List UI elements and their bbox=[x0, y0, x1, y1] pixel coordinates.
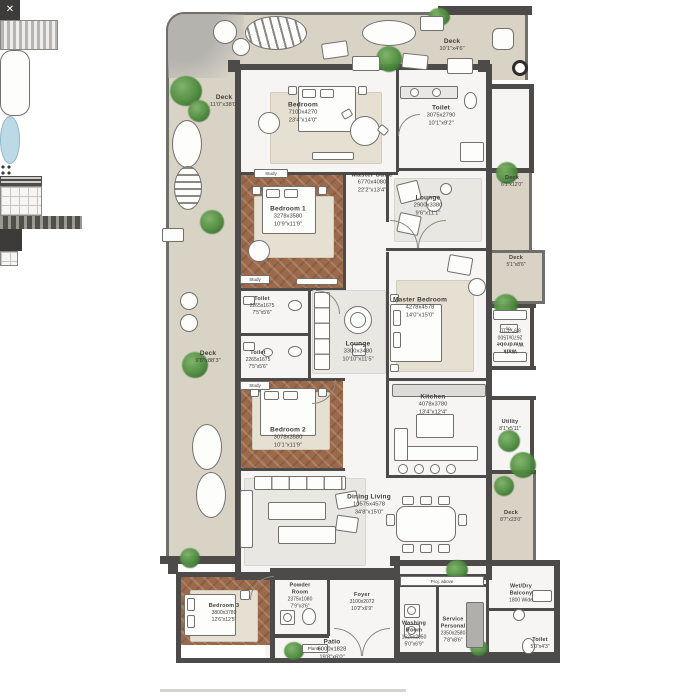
label-kitchen: Kitchen 4078x3780 13'4"x12'4" bbox=[419, 393, 448, 417]
service-sink bbox=[0, 251, 18, 266]
round-table bbox=[440, 183, 452, 195]
wall bbox=[386, 248, 488, 251]
room-dim: 10'10"x11'5" bbox=[342, 356, 373, 364]
room-dim: 6770x4080 bbox=[351, 180, 392, 188]
study-tag: Study bbox=[240, 275, 270, 284]
room-name: Powder Room bbox=[281, 582, 319, 596]
room-dim: 9'6"x11'1" bbox=[414, 210, 443, 218]
wall bbox=[386, 378, 488, 381]
outdoor-lounger bbox=[172, 120, 202, 168]
outdoor-chair bbox=[180, 292, 198, 310]
room-name: Service Personal bbox=[433, 616, 473, 630]
shaft-icon: ✕ bbox=[0, 0, 20, 20]
dining-chair bbox=[438, 544, 450, 553]
room-dim: 10575x4578 bbox=[347, 502, 391, 510]
dining-chair bbox=[458, 514, 467, 526]
column bbox=[228, 60, 240, 72]
label-lounge-top: Lounge 2900x3380 9'6"x11'1" bbox=[414, 194, 443, 218]
room-dim: 23'4"x14'0" bbox=[288, 117, 318, 125]
tree bbox=[188, 100, 210, 122]
wall bbox=[488, 396, 536, 400]
dining-chair bbox=[402, 544, 414, 553]
room-name: Deck bbox=[210, 94, 238, 102]
stove-icon bbox=[0, 164, 12, 176]
room-dim: 8'1"x5'11" bbox=[499, 426, 521, 433]
label-toilet-top: Toilet 3075x2790 10'1"x9'2" bbox=[427, 104, 456, 128]
wall bbox=[386, 475, 488, 478]
room-name: Master Suite bbox=[351, 171, 392, 179]
tree bbox=[200, 210, 224, 234]
wall bbox=[529, 84, 534, 173]
downlight-icon bbox=[512, 60, 528, 76]
pillow bbox=[302, 89, 316, 98]
label-foyer: Foyer 3100x2072 10'2"x6'9" bbox=[350, 592, 375, 612]
armchair bbox=[258, 112, 280, 134]
room-name: Toilet bbox=[530, 637, 549, 644]
room-name: Wet/Dry Balcony bbox=[504, 584, 538, 598]
label-bedroom-top: Bedroom 7100x4270 23'4"x14'0" bbox=[288, 101, 318, 125]
pillow bbox=[264, 391, 279, 400]
room-name: Foyer bbox=[350, 592, 375, 599]
label-toilet-mid-upper: Toilet 2265x1675 7'5"x5'6" bbox=[250, 296, 275, 316]
room-dim: 7100x4270 bbox=[288, 110, 318, 118]
room-name: Toilet bbox=[250, 296, 275, 303]
room-name: Patio bbox=[318, 638, 347, 646]
label-bedroom3: Bedroom 3 3800x3780 12'6"x12'5" bbox=[209, 603, 240, 623]
room-name: Bedroom bbox=[288, 101, 318, 109]
column bbox=[168, 564, 178, 574]
nightstand bbox=[318, 186, 327, 195]
room-dim: 3300x3480 bbox=[342, 349, 373, 357]
kitchen-counter bbox=[394, 428, 408, 461]
sofa bbox=[254, 476, 346, 490]
wall bbox=[270, 568, 398, 574]
wc-toilet bbox=[464, 92, 477, 109]
outdoor-chair bbox=[401, 53, 428, 71]
washing-machine-icon bbox=[0, 229, 22, 251]
pillow bbox=[393, 332, 401, 348]
label-master-bedroom: Master Bedroom 4278x4578 14'0"x15'0" bbox=[392, 296, 448, 320]
nightstand bbox=[240, 590, 250, 600]
column bbox=[390, 556, 400, 566]
room-dim: 3100x2072 bbox=[350, 599, 375, 606]
label-dining-living: Dining Living 10575x4578 34'8"x15'0" bbox=[347, 493, 391, 517]
room-name: Master Bedroom bbox=[392, 296, 448, 304]
wall bbox=[176, 658, 560, 663]
dining-chair bbox=[420, 544, 432, 553]
room-dim: 12'6"x12'5" bbox=[209, 617, 240, 624]
column bbox=[478, 60, 490, 72]
room-name: Deck bbox=[506, 255, 525, 262]
bar-stool bbox=[446, 464, 456, 474]
wall bbox=[486, 64, 492, 580]
room-dim: 10'1"x9'2" bbox=[427, 120, 456, 128]
armchair bbox=[447, 254, 474, 276]
label-walk-wardrobe: Walk Wardrobe 2670x1500 8'9"x4'11" bbox=[491, 326, 529, 353]
label-wet-dry-balcony: Wet/Dry Balcony 1800 Wide bbox=[504, 584, 538, 605]
wall bbox=[176, 572, 181, 660]
room-dim: 5'0"x4'3" bbox=[530, 644, 549, 651]
washer-drum bbox=[407, 606, 416, 615]
nightstand bbox=[288, 86, 297, 95]
outdoor-chair bbox=[232, 38, 250, 56]
vanity-counter bbox=[400, 86, 458, 99]
room-dim: 6000x1828 bbox=[318, 647, 347, 655]
dining-chair bbox=[438, 496, 450, 505]
utility-tiles bbox=[0, 186, 42, 216]
bbq-bench bbox=[162, 228, 184, 242]
room-name: Deck bbox=[501, 175, 523, 182]
tree bbox=[284, 642, 304, 660]
cabinet bbox=[460, 142, 484, 162]
pillow bbox=[320, 89, 334, 98]
room-name: Lounge bbox=[414, 194, 443, 202]
nightstand bbox=[252, 186, 261, 195]
room-dim: 10'2"x6'9" bbox=[350, 606, 375, 613]
room-name: Bedroom 3 bbox=[209, 603, 240, 610]
wall bbox=[327, 574, 330, 636]
room-dim: 10'1"x4'6" bbox=[439, 46, 464, 54]
vent-grille bbox=[0, 176, 42, 186]
wall bbox=[488, 84, 534, 89]
room-name: Deck bbox=[500, 510, 522, 517]
room-dim: 19'8"x6'0" bbox=[318, 654, 347, 662]
room-name: Dining Living bbox=[347, 493, 391, 501]
room-dim: 10'1"x11'9" bbox=[270, 442, 306, 450]
proj-above-strip: Proj. above bbox=[400, 576, 484, 586]
label-patio: Patio 6000x1828 19'8"x6'0" bbox=[318, 638, 347, 662]
room-dim: 7'5"x5'6" bbox=[250, 310, 275, 317]
tv-console bbox=[296, 278, 338, 285]
outdoor-chair bbox=[447, 58, 473, 74]
coffee-table bbox=[268, 502, 326, 520]
room-dim: 14'0"x15'0" bbox=[392, 312, 448, 320]
label-service-personal: Service Personal 2350x2580 7'8"x8'6" bbox=[433, 616, 473, 643]
room-dim: 2265x1675 bbox=[246, 357, 271, 364]
bar-stool bbox=[430, 464, 440, 474]
armchair bbox=[335, 515, 359, 534]
tree bbox=[180, 548, 200, 568]
room-dim: 13'4"x12'4" bbox=[419, 409, 448, 417]
room-dim: 7'5"x5'6" bbox=[246, 364, 271, 371]
label-washing-room: Washing Room 1525x2050 5'0"x6'9" bbox=[397, 620, 431, 647]
wall bbox=[241, 333, 310, 336]
room-dim: 4278x4578 bbox=[392, 305, 448, 313]
room-name: Deck bbox=[195, 350, 220, 358]
room-name: Bedroom 2 bbox=[270, 426, 306, 434]
bar-stool bbox=[414, 464, 424, 474]
outdoor-lounger bbox=[174, 166, 202, 210]
wall bbox=[398, 168, 488, 171]
round-table bbox=[468, 278, 486, 296]
footer-fineprint bbox=[160, 689, 406, 692]
room-dim: 2265x1675 bbox=[250, 303, 275, 310]
label-bedroom1: Bedroom 1 3278x3580 10'9"x11'9" bbox=[270, 205, 306, 229]
room-dim: 5'1"x8'6" bbox=[506, 262, 525, 269]
bathtub-water bbox=[0, 116, 20, 164]
wall bbox=[438, 6, 532, 15]
room-name: Walk Wardrobe bbox=[491, 339, 529, 353]
label-deck-left: Deck 9'8"x88'3" bbox=[195, 350, 220, 366]
bar-stool bbox=[398, 464, 408, 474]
room-name: Bedroom 1 bbox=[270, 205, 306, 213]
sink bbox=[432, 88, 441, 97]
room-name: Toilet bbox=[427, 104, 456, 112]
room-dim: 22'2"x13'4" bbox=[351, 187, 392, 195]
room-dim: 2900x3380 bbox=[414, 203, 443, 211]
room-dim: 9'8"x88'3" bbox=[195, 358, 220, 366]
room-dim: 11'0"x38'0" bbox=[210, 102, 238, 110]
label-master-suite: Master Suite 6770x4080 22'2"x13'4" bbox=[351, 171, 392, 195]
room-dim: 1800 Wide bbox=[504, 598, 538, 605]
room-dim: 3278x3580 bbox=[270, 214, 306, 222]
outdoor-side-table bbox=[492, 28, 514, 50]
sink bbox=[410, 88, 419, 97]
kitchen-island bbox=[416, 414, 454, 438]
pillow bbox=[283, 391, 298, 400]
round-table bbox=[350, 116, 380, 146]
sink-bowl bbox=[283, 613, 292, 622]
wall bbox=[386, 252, 389, 380]
outdoor-chair bbox=[352, 56, 380, 71]
room-name: Washing Room bbox=[397, 620, 431, 634]
wall bbox=[530, 304, 534, 370]
pillow bbox=[284, 189, 298, 198]
wc-toilet bbox=[288, 300, 302, 311]
wall bbox=[176, 572, 275, 577]
wall bbox=[386, 380, 389, 477]
room-dim: 3075x2790 bbox=[427, 113, 456, 121]
outdoor-table bbox=[362, 20, 416, 46]
outdoor-lounger bbox=[196, 472, 226, 518]
wall bbox=[394, 560, 560, 566]
label-deck-right-lower: Deck 8'7"x23'0" bbox=[500, 510, 522, 524]
tree bbox=[494, 476, 514, 496]
outdoor-chair bbox=[180, 314, 198, 332]
pillow bbox=[187, 598, 195, 611]
room-dim: 10'9"x11'9" bbox=[270, 221, 306, 229]
sofa bbox=[240, 490, 253, 548]
room-dim: 8'7"x23'0" bbox=[500, 517, 522, 524]
room-dim: 4078x3780 bbox=[419, 402, 448, 410]
label-deck-right-upper: Deck 6'1"x12'0" bbox=[501, 175, 523, 189]
room-dim: 7'9"x3'6" bbox=[281, 603, 319, 610]
dining-chair bbox=[402, 496, 414, 505]
nightstand bbox=[390, 364, 399, 372]
coffee-table bbox=[278, 526, 336, 544]
room-dim: 34'8"x15'0" bbox=[347, 509, 391, 517]
outdoor-lounger bbox=[245, 16, 307, 50]
wc-toilet bbox=[302, 608, 316, 625]
label-deck-right-mid: Deck 5'1"x8'6" bbox=[506, 255, 525, 269]
tub-room-floor bbox=[488, 89, 529, 168]
nightstand bbox=[358, 86, 367, 95]
wc-toilet bbox=[288, 346, 302, 357]
label-deck-top-right: Deck 10'1"x4'6" bbox=[439, 38, 464, 54]
room-name: Utility bbox=[499, 419, 521, 426]
floor-plan: ✕ Study bbox=[0, 0, 700, 700]
label-toilet-service: Toilet 5'0"x4'3" bbox=[530, 637, 549, 651]
washing-machine-drum bbox=[513, 609, 525, 621]
label-powder-room: Powder Room 2375x1080 7'9"x3'6" bbox=[281, 582, 319, 609]
bathtub bbox=[0, 50, 30, 116]
room-name: Toilet bbox=[246, 350, 271, 357]
room-dim: 1525x2050 bbox=[397, 635, 431, 642]
room-name: Lounge bbox=[342, 340, 373, 348]
room-dim: 3800x3780 bbox=[209, 610, 240, 617]
room-dim: 7'8"x8'6" bbox=[433, 637, 473, 644]
pillow bbox=[187, 615, 195, 628]
tree bbox=[498, 430, 520, 452]
label-deck-top-left: Deck 11'0"x38'0" bbox=[210, 94, 238, 110]
room-dim: 3078x3580 bbox=[270, 435, 306, 443]
room-dim: 6'1"x12'0" bbox=[501, 182, 523, 189]
louver-deck bbox=[0, 216, 82, 229]
outdoor-chair bbox=[420, 16, 444, 31]
dining-table bbox=[396, 506, 456, 542]
wardrobe-shelf bbox=[493, 310, 527, 320]
dining-chair bbox=[420, 496, 432, 505]
study-tag: Study bbox=[254, 169, 288, 178]
room-name: Kitchen bbox=[419, 393, 448, 401]
label-toilet-mid-lower: Toilet 2265x1675 7'5"x5'6" bbox=[246, 350, 271, 370]
wall bbox=[396, 70, 399, 172]
bench bbox=[312, 152, 354, 160]
label-bedroom2: Bedroom 2 3078x3580 10'1"x11'9" bbox=[270, 426, 306, 450]
shower-area bbox=[0, 20, 58, 50]
wall bbox=[241, 468, 345, 471]
tree bbox=[510, 452, 536, 478]
room-dim: 5'0"x6'9" bbox=[397, 641, 431, 648]
study-tag: Study bbox=[240, 381, 270, 390]
lounge-chair bbox=[248, 240, 270, 262]
room-name: Deck bbox=[439, 38, 464, 46]
wall bbox=[488, 366, 536, 370]
wall bbox=[343, 175, 346, 290]
outdoor-lounger bbox=[192, 424, 222, 470]
label-lounge-mid: Lounge 3300x3480 10'10"x11'5" bbox=[342, 340, 373, 364]
label-utility: Utility 8'1"x5'11" bbox=[499, 419, 521, 433]
swivel-chair-seat bbox=[350, 312, 366, 328]
pillow bbox=[266, 189, 280, 198]
